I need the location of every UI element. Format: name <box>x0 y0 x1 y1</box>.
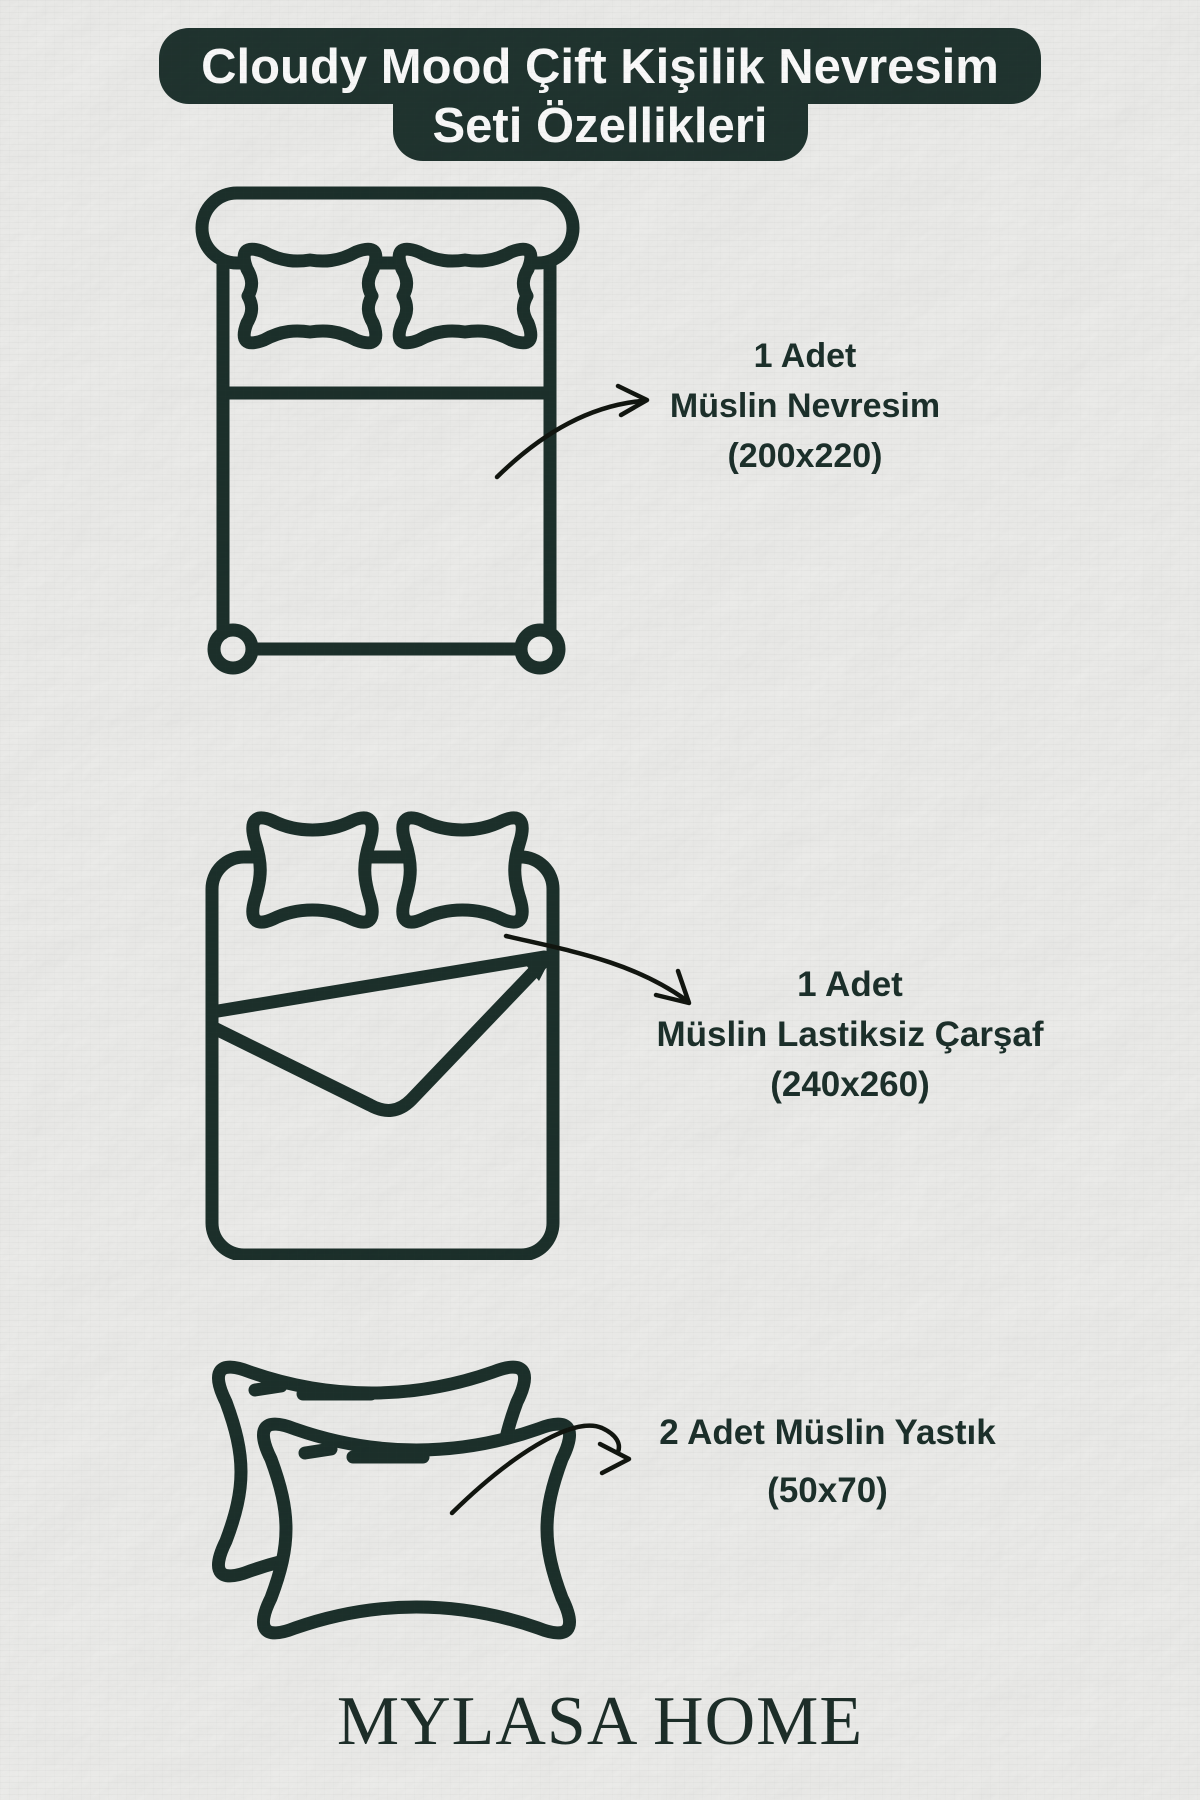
item-label-line: Müslin Lastiksiz Çarşaf <box>590 1010 1110 1060</box>
item-label-sheet: 1 Adet Müslin Lastiksiz Çarşaf (240x260) <box>590 960 1110 1110</box>
product-infographic: Cloudy Mood Çift Kişilik Nevresim Seti Ö… <box>0 0 1200 1800</box>
front-pillow <box>263 1424 569 1633</box>
item-label-line: (50x70) <box>570 1462 1085 1520</box>
item-label-line: (240x260) <box>590 1060 1110 1110</box>
item-label-line: Müslin Nevresim <box>560 381 1050 431</box>
paper-weave-texture <box>0 0 1200 1800</box>
item-label-pillows: 2 Adet Müslin Yastık (50x70) <box>570 1404 1085 1520</box>
item-label-line: 1 Adet <box>590 960 1110 1010</box>
double-bed-top-view-icon <box>185 185 600 685</box>
item-label-duvet: 1 Adet Müslin Nevresim (200x220) <box>560 331 1050 481</box>
title-banner: Cloudy Mood Çift Kişilik Nevresim Seti Ö… <box>0 28 1200 161</box>
title-line-1: Cloudy Mood Çift Kişilik Nevresim <box>159 28 1041 104</box>
item-label-line: 1 Adet <box>560 331 1050 381</box>
bed-flat-sheet-icon <box>200 805 560 1260</box>
title-line-2: Seti Özellikleri <box>393 103 808 161</box>
annotation-arrows <box>0 0 1200 1800</box>
two-pillows-icon <box>200 1352 595 1652</box>
item-label-line: (200x220) <box>560 431 1050 481</box>
item-label-line: 2 Adet Müslin Yastık <box>570 1404 1085 1462</box>
paper-crumple-texture <box>0 0 1200 1800</box>
brand-logo: MYLASA HOME <box>0 1682 1200 1762</box>
pillow-shape <box>253 818 523 922</box>
